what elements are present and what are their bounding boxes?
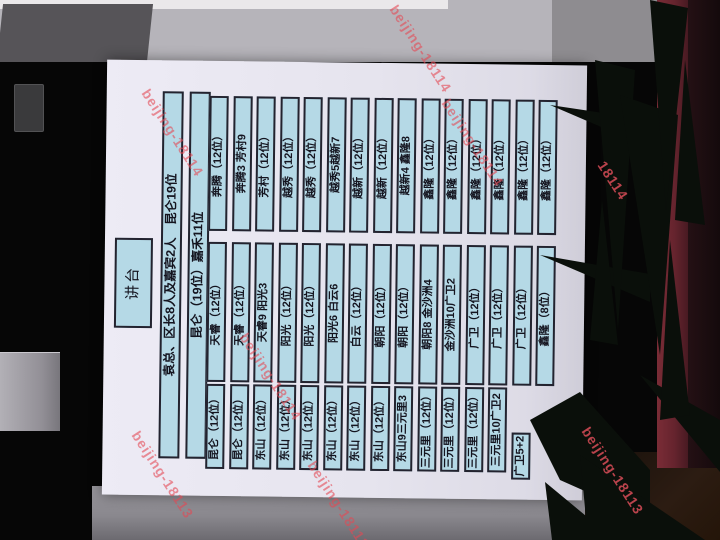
seat-box-right: 越秀（12位） [302, 97, 323, 232]
seat-box-right: 越秀（12位） [279, 97, 300, 232]
seat-box-left: 东山9三元里3 [393, 386, 413, 471]
seat-box-right: 越新4 鑫隆8 [396, 98, 417, 233]
seat-box-left: 三元里（12位） [417, 386, 437, 471]
seat-box-middle: 阳光（12位） [300, 243, 321, 383]
seat-box-left: 三元里（12位） [464, 387, 484, 472]
seat-box-left: 东山（12位） [299, 385, 319, 470]
seat-box-middle: 天睿（12位） [230, 242, 251, 382]
seat-box-left: 三元里（12位） [440, 387, 460, 472]
seat-box-middle: 金沙洲10广卫2 [441, 245, 462, 385]
wall-speaker-box [14, 84, 44, 132]
seat-box-middle: 白云（12位） [347, 244, 368, 384]
seat-box-middle: 阳光（12位） [277, 243, 298, 383]
seat-box-right: 芳村（12位） [255, 96, 276, 231]
seat-box-right: 鑫隆（12位） [420, 98, 441, 233]
seat-box-middle: 朝阳8 金沙洲4 [418, 244, 439, 384]
seat-box-middle: 阳光6 白云6 [324, 243, 345, 383]
seat-box-middle: 天睿（12位） [206, 242, 227, 382]
seat-box-right: 越新（12位） [373, 98, 394, 233]
seat-box-middle: 广卫（12位） [465, 245, 486, 385]
seat-box-left: 昆仑（12位） [229, 384, 249, 469]
seat-box-left: 昆仑（12位） [205, 384, 225, 469]
seat-box-left: 东山（12位） [370, 386, 390, 471]
seat-box-middle: 朝阳（12位） [371, 244, 392, 384]
podium-box: 讲台 [114, 238, 153, 328]
seat-box-middle: 朝阳（12位） [394, 244, 415, 384]
seat-box-right: 越新（12位） [349, 98, 370, 233]
seat-grid: 昆仑（12位）天睿（12位）奔腾（12位）昆仑（12位）天睿（12位）奔腾3 芳… [102, 60, 107, 495]
seat-box-right: 奔腾（12位） [208, 96, 229, 231]
stage-photo: 讲台 袁总、区长8人及嘉宾2人 昆仑19位 昆仑（19位）嘉禾11位 昆仑（12… [0, 0, 720, 540]
seat-box-left: 东山（12位） [323, 385, 343, 470]
ceiling-shadow-left [0, 4, 153, 62]
stage-monitor [0, 352, 60, 431]
seat-box-left: 东山（12位） [346, 386, 366, 471]
seat-box-left: 东山（12位） [252, 384, 272, 469]
seat-box-right: 奔腾3 芳村9 [232, 96, 253, 231]
seat-box-right: 越秀5越新7 [326, 97, 347, 232]
